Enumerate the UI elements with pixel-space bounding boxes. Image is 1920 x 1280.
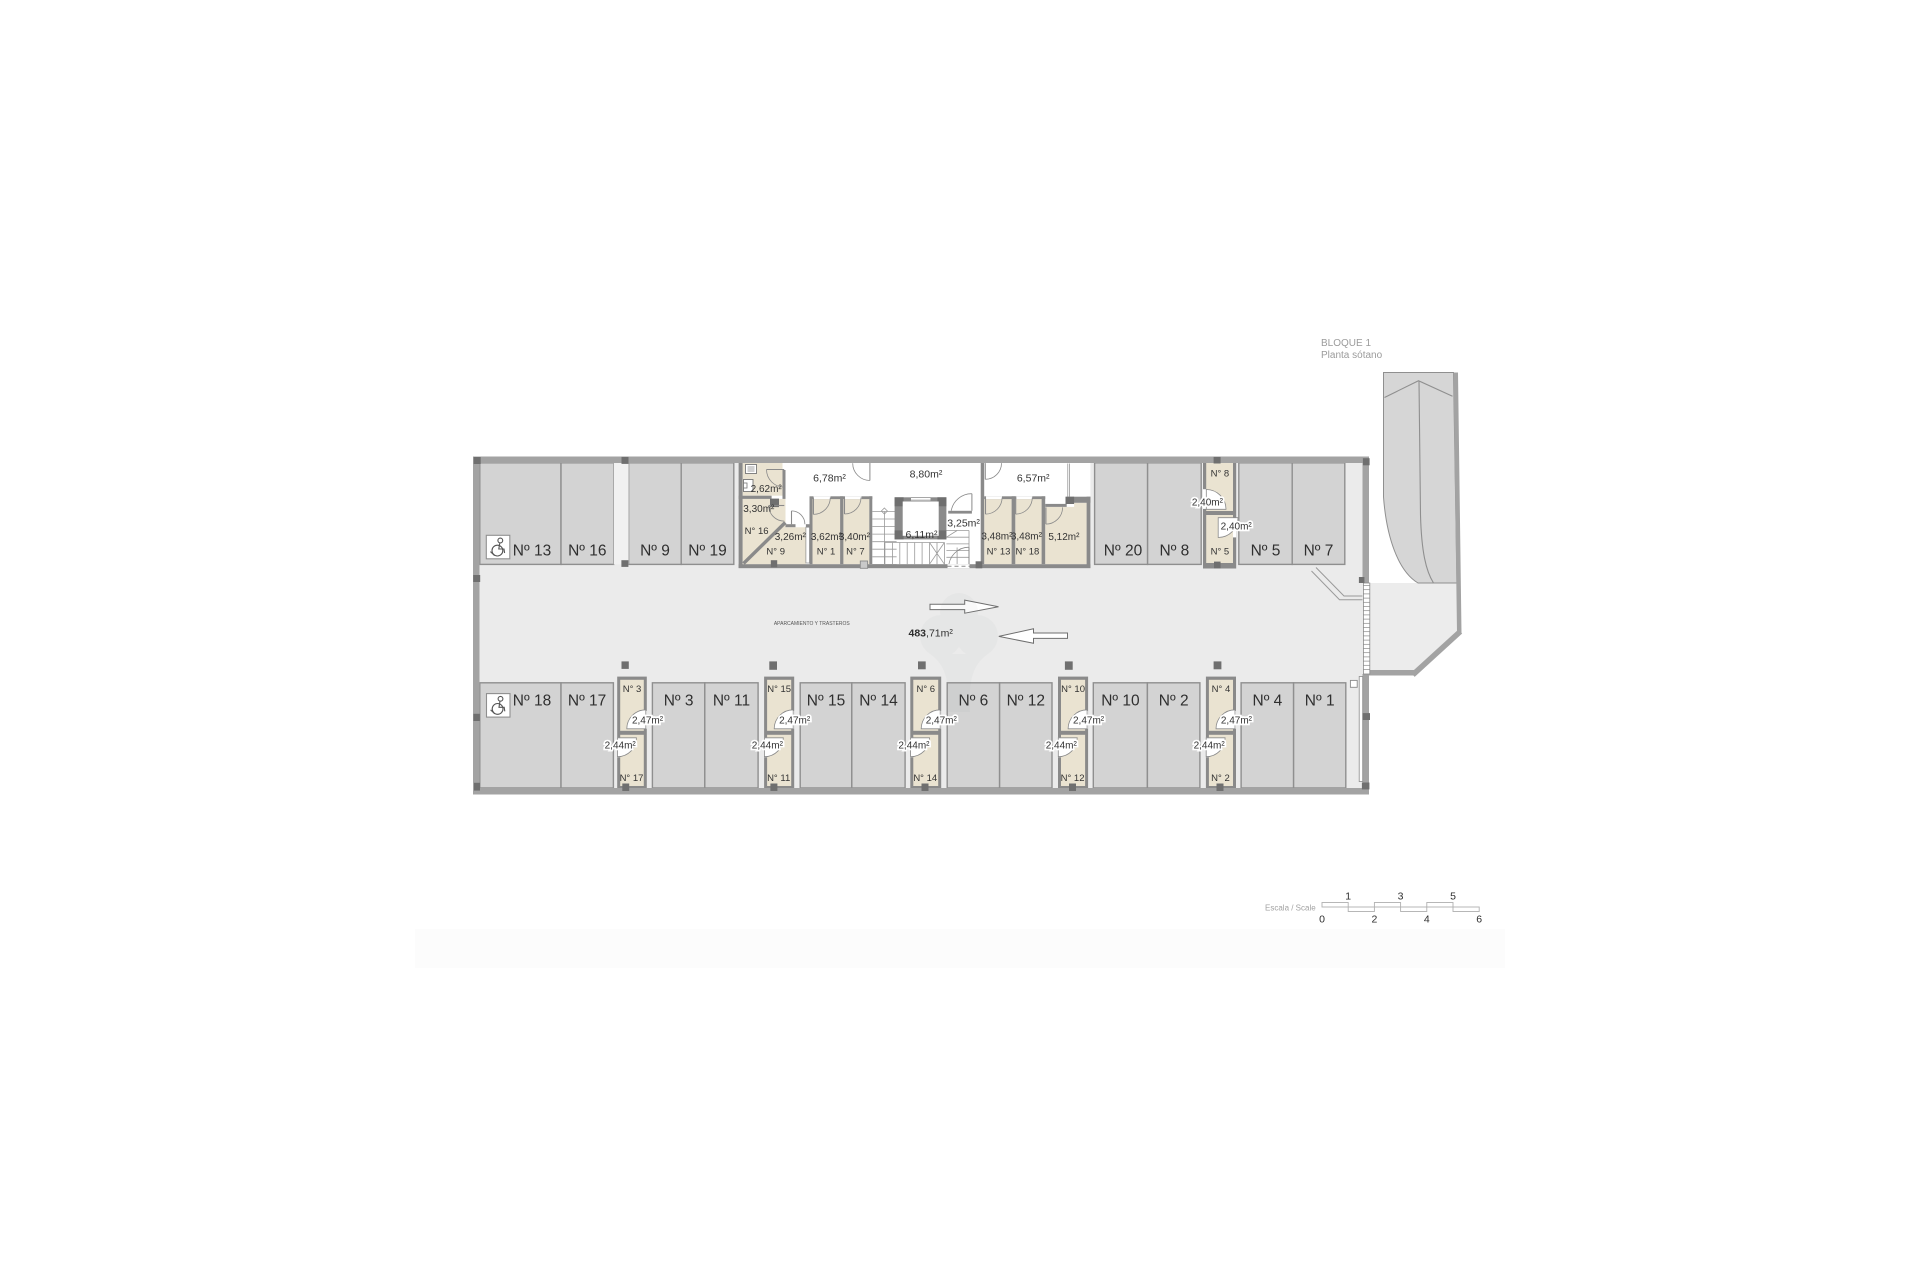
svg-text:N° 2: N° 2 [1211, 773, 1230, 784]
svg-text:N° 9: N° 9 [766, 546, 785, 557]
svg-text:1: 1 [1345, 891, 1351, 903]
svg-text:3,30m²: 3,30m² [743, 504, 775, 515]
svg-text:N° 11: N° 11 [767, 773, 790, 784]
svg-text:N° 5: N° 5 [1211, 547, 1230, 558]
svg-text:2,44m²: 2,44m² [1046, 741, 1078, 752]
svg-text:2,47m²: 2,47m² [632, 716, 664, 727]
svg-text:Nº 17: Nº 17 [568, 693, 606, 710]
svg-text:2,47m²: 2,47m² [1221, 716, 1253, 727]
svg-text:Nº 3: Nº 3 [664, 693, 694, 710]
svg-text:Planta sótano: Planta sótano [1321, 350, 1383, 361]
svg-text:Nº 15: Nº 15 [807, 693, 845, 710]
svg-text:Nº 5: Nº 5 [1251, 542, 1281, 559]
svg-text:N° 18: N° 18 [1015, 547, 1039, 558]
svg-text:Nº 8: Nº 8 [1160, 542, 1190, 559]
svg-text:N° 4: N° 4 [1212, 684, 1231, 695]
svg-text:3,48m²: 3,48m² [981, 531, 1013, 542]
svg-text:2,47m²: 2,47m² [1073, 716, 1105, 727]
svg-text:5,12m²: 5,12m² [1048, 532, 1080, 543]
svg-text:Nº 14: Nº 14 [859, 693, 898, 710]
svg-text:Escala / Scale: Escala / Scale [1265, 904, 1316, 913]
svg-text:2,40m²: 2,40m² [1221, 522, 1253, 533]
svg-text:N° 3: N° 3 [623, 684, 642, 695]
svg-text:N° 7: N° 7 [846, 547, 865, 558]
svg-text:Nº 4: Nº 4 [1253, 693, 1283, 710]
svg-text:2,62m²: 2,62m² [751, 484, 783, 495]
svg-text:2,44m²: 2,44m² [752, 741, 784, 752]
svg-text:3: 3 [1398, 891, 1404, 903]
svg-text:0: 0 [1319, 914, 1325, 926]
svg-text:N° 16: N° 16 [745, 526, 769, 537]
svg-text:Nº 1: Nº 1 [1305, 693, 1335, 710]
svg-text:3,48m²: 3,48m² [1011, 531, 1043, 542]
svg-text:3,25m²: 3,25m² [947, 518, 980, 530]
svg-text:6,57m²: 6,57m² [1017, 473, 1050, 485]
svg-text:N° 15: N° 15 [767, 684, 791, 695]
svg-text:8,80m²: 8,80m² [910, 468, 943, 480]
svg-text:4: 4 [1424, 914, 1430, 926]
svg-text:2,47m²: 2,47m² [926, 716, 958, 727]
svg-text:N° 6: N° 6 [916, 684, 935, 695]
svg-text:2,44m²: 2,44m² [898, 741, 930, 752]
svg-text:Nº 7: Nº 7 [1304, 542, 1334, 559]
svg-text:6,78m²: 6,78m² [813, 473, 846, 485]
svg-text:N° 13: N° 13 [987, 547, 1011, 558]
svg-text:5: 5 [1450, 891, 1456, 903]
svg-text:2,44m²: 2,44m² [605, 741, 637, 752]
svg-text:N° 8: N° 8 [1211, 469, 1230, 480]
svg-text:N° 10: N° 10 [1061, 684, 1085, 695]
svg-text:Nº 20: Nº 20 [1104, 542, 1143, 559]
svg-text:2,44m²: 2,44m² [1194, 741, 1226, 752]
svg-text:Nº 12: Nº 12 [1007, 693, 1045, 710]
svg-text:6,11m²: 6,11m² [906, 529, 938, 541]
svg-text:6: 6 [1476, 914, 1482, 926]
svg-text:Nº 9: Nº 9 [640, 542, 670, 559]
svg-text:Nº 19: Nº 19 [688, 542, 726, 559]
svg-text:Nº 11: Nº 11 [713, 693, 750, 710]
svg-text:2,47m²: 2,47m² [779, 716, 811, 727]
svg-text:N° 17: N° 17 [620, 773, 644, 784]
svg-text:3,40m²: 3,40m² [839, 532, 871, 543]
svg-text:N° 12: N° 12 [1061, 773, 1085, 784]
svg-text:Nº 16: Nº 16 [568, 542, 606, 559]
svg-text:Nº 13: Nº 13 [513, 542, 551, 559]
svg-text:BLOQUE 1: BLOQUE 1 [1321, 338, 1371, 349]
svg-text:2,40m²: 2,40m² [1192, 498, 1224, 509]
svg-text:APARCAMIENTO Y TRASTEROS: APARCAMIENTO Y TRASTEROS [774, 621, 851, 627]
svg-text:Nº 2: Nº 2 [1159, 693, 1189, 710]
svg-text:3,26m²: 3,26m² [775, 532, 807, 543]
svg-text:N° 1: N° 1 [817, 547, 836, 558]
svg-text:Nº 10: Nº 10 [1101, 693, 1140, 710]
svg-text:N° 14: N° 14 [913, 773, 937, 784]
svg-text:2: 2 [1371, 914, 1377, 926]
svg-text:Nº 18: Nº 18 [513, 693, 551, 710]
